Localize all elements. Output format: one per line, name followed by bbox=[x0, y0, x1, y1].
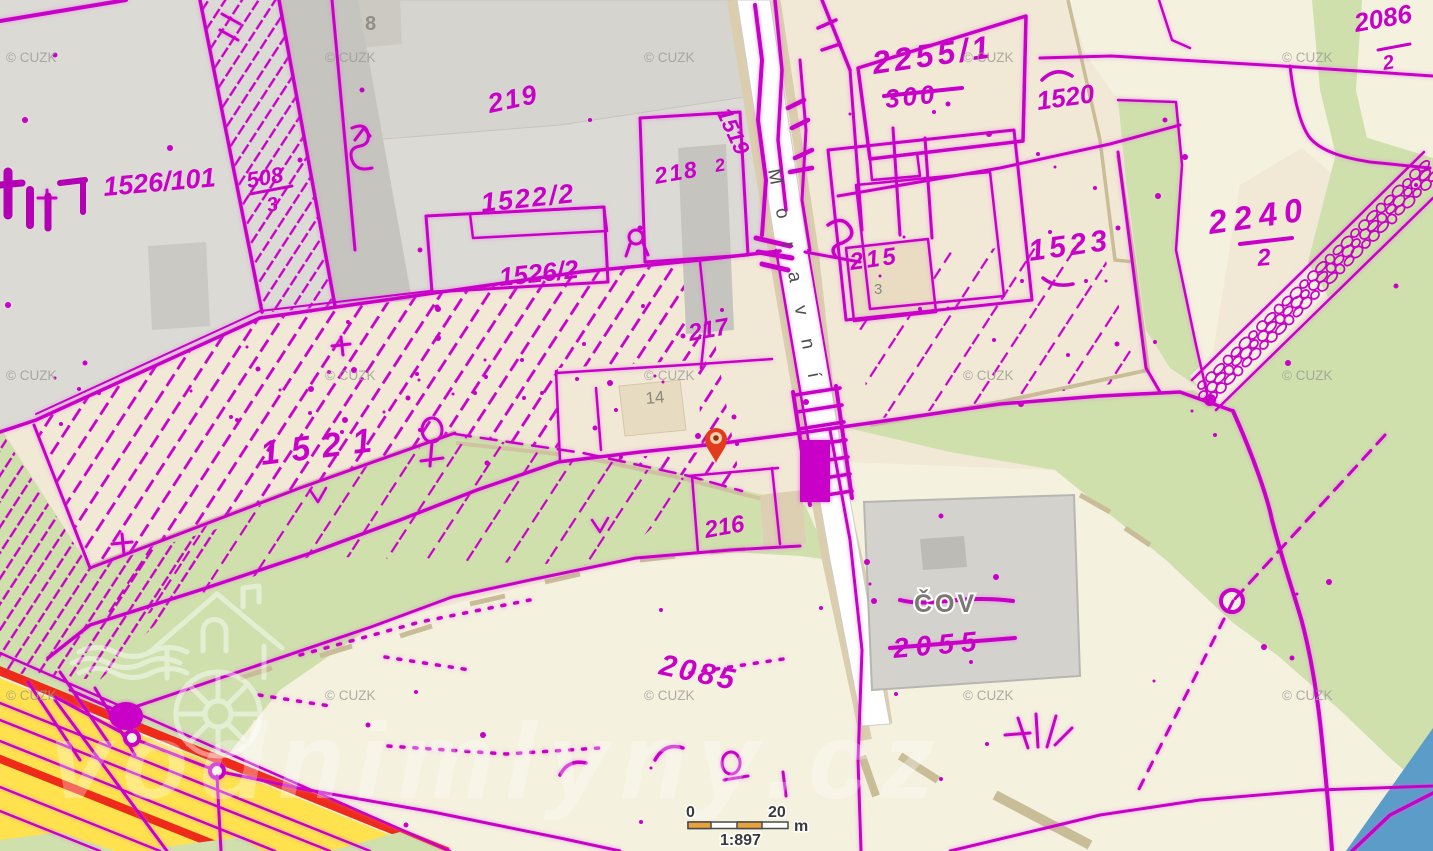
svg-text:3: 3 bbox=[874, 281, 882, 298]
svg-text:vodnimlyny.cz: vodnimlyny.cz bbox=[50, 700, 946, 821]
svg-text:20: 20 bbox=[768, 804, 786, 821]
svg-text:© CUZK: © CUZK bbox=[1282, 50, 1332, 65]
svg-text:© CUZK: © CUZK bbox=[963, 50, 1013, 65]
svg-text:© CUZK: © CUZK bbox=[1282, 368, 1332, 383]
svg-text:© CUZK: © CUZK bbox=[6, 368, 56, 383]
svg-text:14: 14 bbox=[645, 387, 666, 408]
svg-text:© CUZK: © CUZK bbox=[6, 50, 56, 65]
svg-text:ČOV: ČOV bbox=[914, 588, 977, 618]
svg-text:© CUZK: © CUZK bbox=[963, 368, 1013, 383]
svg-text:© CUZK: © CUZK bbox=[325, 50, 375, 65]
svg-text:© CUZK: © CUZK bbox=[1282, 688, 1332, 703]
svg-text:© CUZK: © CUZK bbox=[6, 688, 56, 703]
svg-text:© CUZK: © CUZK bbox=[963, 688, 1013, 703]
svg-text:1:897: 1:897 bbox=[720, 832, 761, 849]
svg-text:m: m bbox=[794, 818, 808, 835]
svg-text:© CUZK: © CUZK bbox=[644, 368, 694, 383]
svg-text:© CUZK: © CUZK bbox=[325, 368, 375, 383]
svg-text:© CUZK: © CUZK bbox=[644, 50, 694, 65]
svg-text:0: 0 bbox=[686, 804, 695, 821]
svg-text:8: 8 bbox=[365, 13, 376, 35]
